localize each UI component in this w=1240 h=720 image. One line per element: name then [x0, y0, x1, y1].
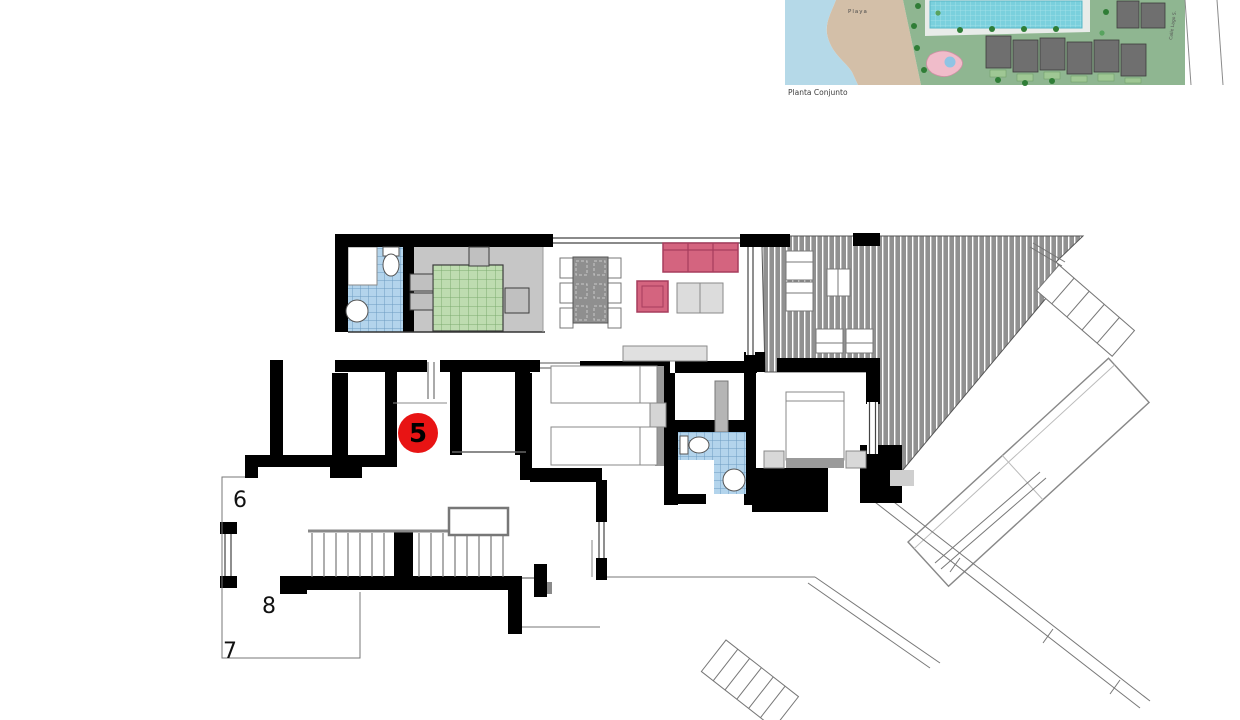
nightstand	[650, 403, 666, 427]
kids-pool-water	[945, 57, 956, 68]
bathroom1-shower	[348, 247, 377, 285]
exterior-lower-stairs	[701, 640, 798, 720]
twin-bed-1	[551, 366, 657, 403]
level-label-8: 8	[262, 594, 276, 619]
unit-marker: 5	[398, 413, 438, 453]
exterior-upper-stairs	[1037, 265, 1135, 356]
site-plan-caption: Planta Conjunto	[788, 88, 848, 97]
floorplan-drawing: Playa Calle Lago S. Planta Conjunto	[0, 0, 1240, 720]
level-label-6: 6	[233, 488, 247, 513]
lower-level-boundaries	[522, 472, 1150, 708]
bathroom2	[678, 432, 746, 494]
sideboard	[623, 346, 707, 361]
dining-set	[560, 257, 621, 328]
twin-bed-2	[551, 427, 657, 465]
swimming-pool	[930, 1, 1082, 28]
floorplan-page: Playa Calle Lago S. Planta Conjunto	[0, 0, 1240, 720]
beach-label: Playa	[848, 9, 868, 15]
level-label-7: 7	[223, 639, 237, 664]
double-bed	[786, 392, 844, 460]
site-plan-thumbnail: Playa Calle Lago S. Planta Conjunto	[785, 0, 1223, 97]
unit-marker-number: 5	[409, 419, 427, 449]
sofa	[663, 243, 738, 272]
nightstand-right	[846, 451, 866, 468]
kitchen-tiled-area	[433, 265, 503, 331]
street-road	[1185, 0, 1223, 85]
nightstand-left	[764, 451, 784, 468]
dining-table	[573, 257, 608, 323]
living-furniture	[623, 243, 738, 361]
stair-landing	[449, 508, 508, 535]
wardrobe	[715, 381, 728, 432]
